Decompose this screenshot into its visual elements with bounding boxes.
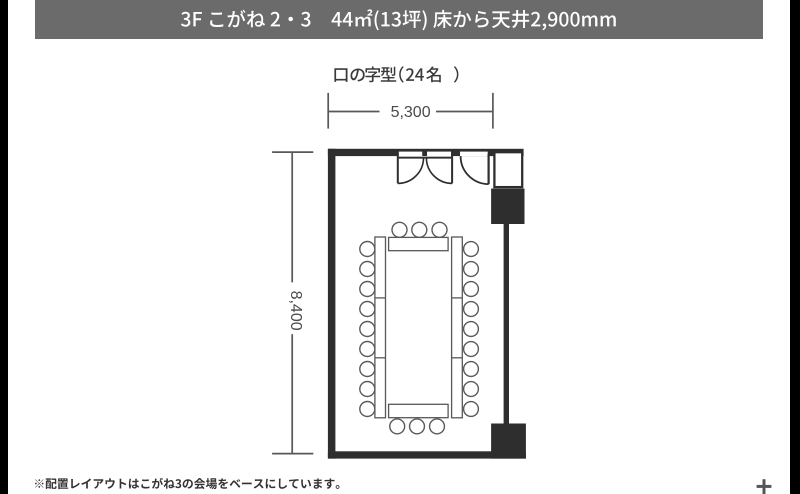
svg-text:8,400: 8,400 bbox=[287, 291, 304, 331]
svg-text:5,300: 5,300 bbox=[391, 104, 431, 121]
